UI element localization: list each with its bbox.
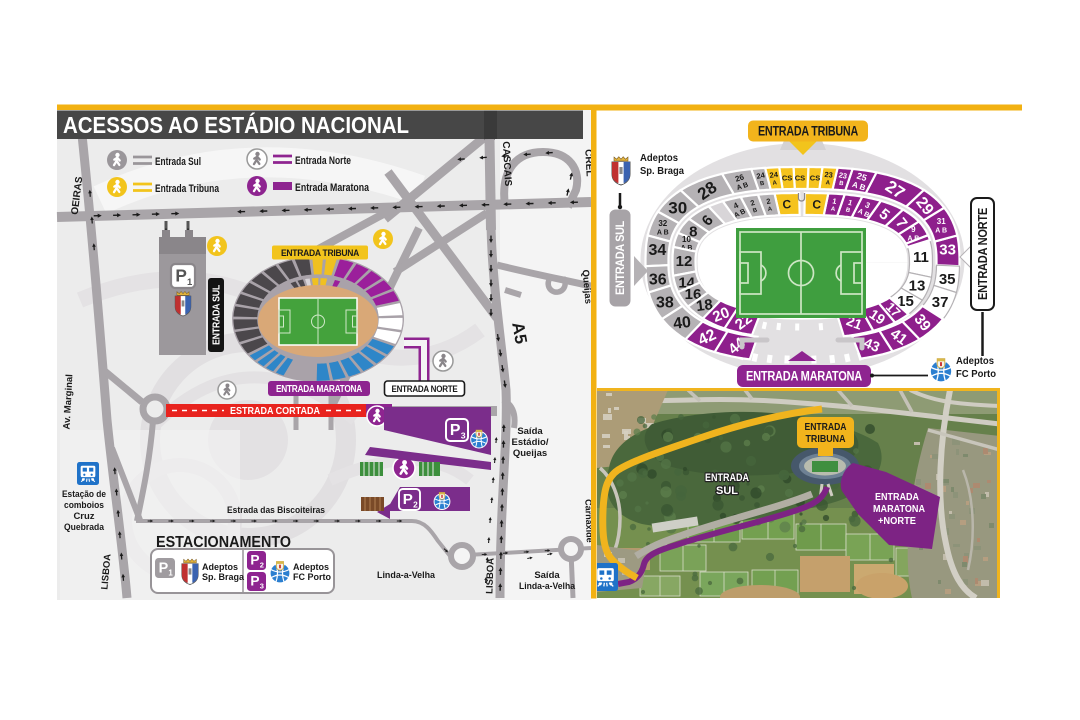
svg-text:Sp. Braga: Sp. Braga (202, 572, 245, 582)
svg-text:35: 35 (939, 271, 956, 288)
svg-text:1: 1 (168, 569, 173, 578)
svg-text:ENTRADA SUL: ENTRADA SUL (613, 221, 627, 295)
svg-text:CS: CS (782, 174, 792, 183)
svg-text:SUL: SUL (716, 485, 738, 497)
svg-text:TRIBUNA: TRIBUNA (806, 434, 846, 445)
svg-text:33: 33 (939, 242, 956, 259)
svg-text:ENTRADA MARATONA: ENTRADA MARATONA (746, 369, 862, 384)
svg-text:Saída: Saída (534, 570, 560, 581)
svg-text:ENTRADA MARATONA: ENTRADA MARATONA (276, 384, 362, 395)
svg-text:2: 2 (260, 561, 264, 570)
svg-text:40: 40 (672, 314, 692, 333)
svg-text:P: P (250, 553, 259, 568)
svg-text:Queijas: Queijas (513, 448, 547, 459)
svg-text:Entrada Tribuna: Entrada Tribuna (155, 183, 220, 195)
svg-text:Estação de: Estação de (62, 489, 106, 500)
svg-text:Adeptos: Adeptos (956, 355, 994, 367)
svg-text:Entrada Maratona: Entrada Maratona (295, 182, 370, 194)
svg-text:ENTRADA: ENTRADA (875, 491, 919, 503)
svg-text:ENTRADA TRIBUNA: ENTRADA TRIBUNA (281, 248, 359, 259)
svg-text:+NORTE: +NORTE (878, 515, 916, 527)
svg-text:Estádio/: Estádio/ (512, 437, 549, 448)
svg-text:3: 3 (260, 582, 264, 591)
svg-text:Adeptos: Adeptos (202, 562, 238, 572)
svg-text:32: 32 (658, 219, 667, 228)
svg-text:Quebrada: Quebrada (64, 522, 105, 533)
svg-text:ENTRADA NORTE: ENTRADA NORTE (976, 208, 990, 300)
svg-text:FC Porto: FC Porto (956, 368, 996, 380)
svg-text:A B: A B (935, 227, 947, 234)
svg-text:ENTRADA NORTE: ENTRADA NORTE (392, 384, 458, 395)
svg-text:34: 34 (649, 242, 667, 259)
svg-text:P: P (403, 491, 413, 508)
svg-text:ACESSOS AO ESTÁDIO NACIONAL: ACESSOS AO ESTÁDIO NACIONAL (63, 111, 409, 138)
svg-text:30: 30 (668, 198, 687, 217)
svg-text:A B: A B (657, 229, 669, 236)
svg-text:ESTRADA CORTADA: ESTRADA CORTADA (230, 406, 320, 417)
svg-text:36: 36 (649, 272, 667, 289)
svg-text:P: P (159, 560, 169, 576)
svg-text:1: 1 (187, 277, 193, 288)
svg-text:ENTRADA: ENTRADA (705, 472, 749, 484)
svg-text:CS: CS (810, 174, 820, 183)
svg-text:P: P (175, 265, 187, 285)
svg-text:23: 23 (838, 170, 848, 180)
svg-text:P: P (250, 574, 259, 589)
svg-text:12: 12 (676, 253, 693, 270)
svg-text:2: 2 (413, 500, 418, 510)
svg-text:Estrada das Biscoiteiras: Estrada das Biscoiteiras (227, 505, 325, 516)
svg-text:P: P (450, 422, 461, 439)
svg-text:38: 38 (656, 294, 674, 311)
svg-text:3: 3 (461, 430, 466, 440)
svg-text:MARATONA: MARATONA (873, 503, 925, 515)
svg-text:LISBOA: LISBOA (484, 558, 496, 594)
svg-text:ENTRADA: ENTRADA (805, 422, 847, 433)
svg-text:ENTRADA SUL: ENTRADA SUL (212, 285, 223, 345)
svg-text:ENTRADA TRIBUNA: ENTRADA TRIBUNA (758, 124, 858, 139)
svg-text:Adeptos: Adeptos (640, 152, 678, 164)
svg-text:23: 23 (824, 170, 833, 180)
svg-text:FC Porto: FC Porto (293, 572, 331, 582)
svg-text:31: 31 (937, 217, 946, 226)
svg-text:C: C (812, 197, 822, 212)
svg-text:Adeptos: Adeptos (293, 562, 329, 572)
svg-text:Linda-a-Velha: Linda-a-Velha (377, 570, 436, 581)
svg-text:11: 11 (913, 249, 929, 266)
svg-text:comboios: comboios (64, 500, 104, 511)
svg-text:Cruz: Cruz (73, 511, 94, 522)
svg-text:CS: CS (795, 174, 805, 183)
svg-text:Entrada Sul: Entrada Sul (155, 156, 201, 168)
svg-text:10: 10 (682, 235, 691, 244)
svg-text:Saída: Saída (517, 426, 543, 437)
svg-text:Sp. Braga: Sp. Braga (640, 165, 684, 177)
svg-text:13: 13 (909, 278, 926, 295)
svg-text:C: C (782, 197, 792, 212)
svg-text:Linda-a-Velha: Linda-a-Velha (519, 581, 576, 592)
svg-text:Entrada Norte: Entrada Norte (295, 155, 351, 167)
svg-text:37: 37 (932, 294, 949, 311)
svg-text:A5: A5 (508, 321, 530, 346)
